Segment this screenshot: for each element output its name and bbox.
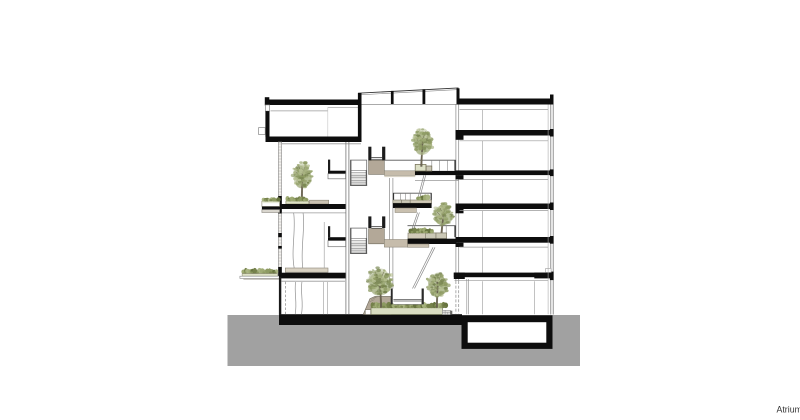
svg-text:Atrium: Atrium xyxy=(777,405,800,415)
